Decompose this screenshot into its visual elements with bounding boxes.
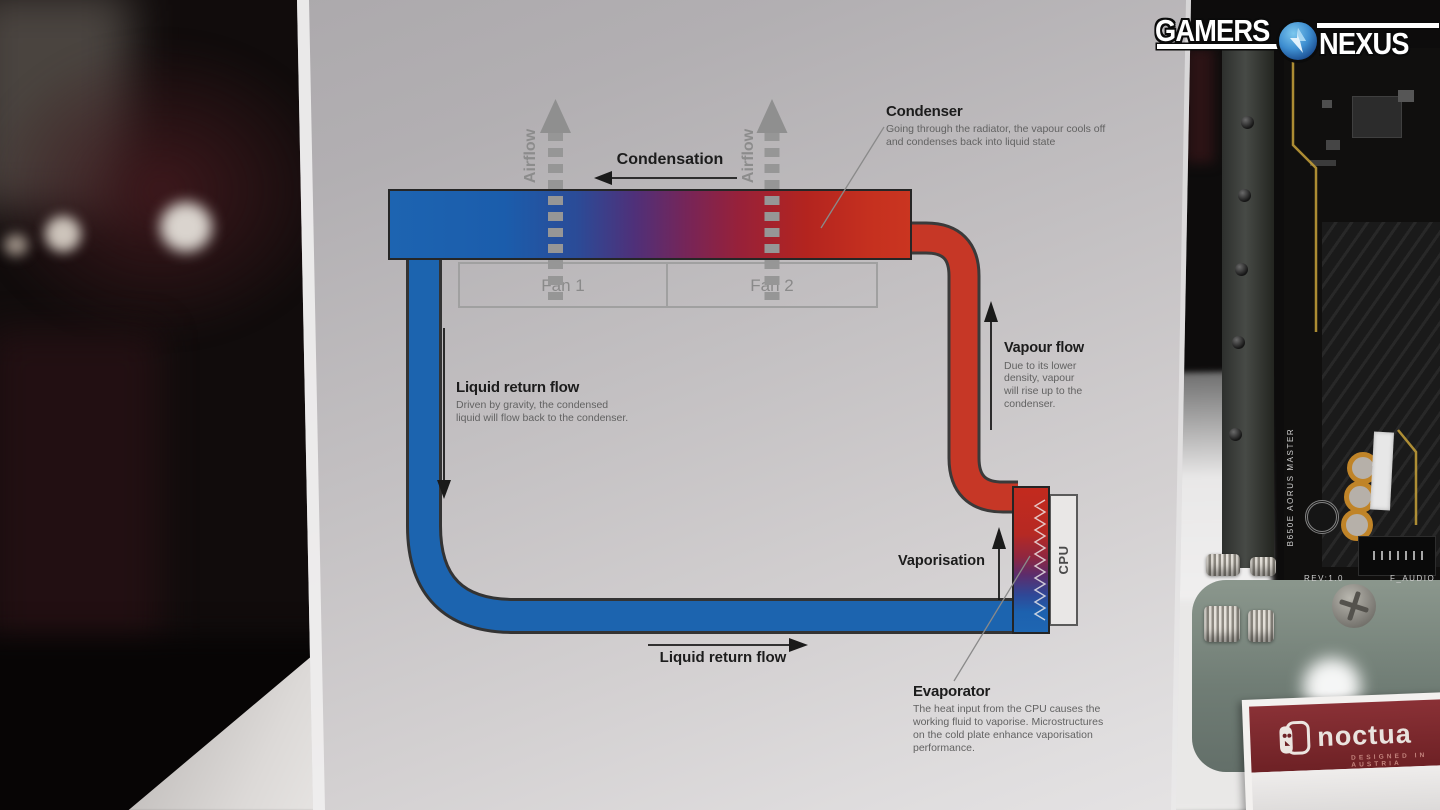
screw: [1229, 428, 1242, 441]
condensation-label: Condensation: [600, 151, 740, 169]
phillips-screw: [1332, 584, 1376, 628]
noctua-card-face: noctua DESIGNED IN AUSTRIA: [1249, 699, 1440, 773]
condenser-callout: Condenser Going through the radiator, th…: [886, 103, 1116, 149]
airflow-label-2: Airflow: [740, 121, 758, 191]
condenser-title: Condenser: [886, 103, 1116, 120]
motherboard-model-text: B650E AORUS MASTER: [1286, 402, 1296, 572]
f-audio-text: F_AUDIO: [1390, 574, 1435, 583]
microstructure-zigzag: [1035, 500, 1045, 620]
airflow-arrowhead-1: [540, 99, 571, 133]
screw: [1238, 189, 1251, 202]
liquid-return-flow-callout: Liquid return flow Driven by gravity, th…: [456, 379, 676, 425]
cpu-label: CPU: [1056, 530, 1070, 590]
thumbscrew: [1248, 610, 1274, 642]
thumbscrew: [1250, 557, 1276, 576]
gamersnexus-logo: GAMERS NEXUS: [1150, 8, 1440, 68]
screw: [1235, 263, 1248, 276]
noctua-brand-card: noctua DESIGNED IN AUSTRIA: [1242, 692, 1440, 810]
screw: [1232, 336, 1245, 349]
evaporator-title: Evaporator: [913, 683, 1133, 700]
video-frame: B650E AORUS MASTER REV:1.0 F_AUDIO noctu…: [0, 0, 1440, 810]
thumbscrew: [1206, 554, 1240, 576]
noctua-wordmark: noctua: [1317, 720, 1412, 751]
barcode-label: [1370, 432, 1394, 511]
liquid-return-flow-bottom-label: Liquid return flow: [650, 649, 796, 666]
evaporator-callout: Evaporator The heat input from the CPU c…: [913, 683, 1133, 754]
evaporator-leader-line: [954, 556, 1030, 681]
liquid-return-flow-title: Liquid return flow: [456, 379, 676, 396]
screw: [1241, 116, 1254, 129]
condenser-description: Going through the radiator, the vapour c…: [886, 123, 1116, 149]
front-audio-header: [1358, 536, 1436, 576]
vapour-flow-callout: Vapour flow Due to its lower density, va…: [1004, 340, 1124, 411]
noctua-card-stand: [1252, 765, 1440, 810]
vaporisation-label: Vaporisation: [880, 553, 985, 569]
vapour-flow-description: Due to its lower density, vapour will ri…: [1004, 360, 1124, 411]
airflow-arrowhead-2: [757, 99, 788, 133]
thumbscrew: [1204, 606, 1240, 642]
liquid-return-flow-description: Driven by gravity, the condensed liquid …: [456, 399, 676, 425]
noctua-owl-logo-icon: [1276, 717, 1312, 758]
pcb-revision-text: REV:1.0: [1304, 574, 1344, 583]
nexus-text: NEXUS: [1319, 28, 1409, 59]
vapour-flow-title: Vapour flow: [1004, 340, 1124, 357]
airflow-label-1: Airflow: [522, 121, 540, 191]
gamersnexus-emblem-icon: [1276, 19, 1320, 63]
cmos-battery-holder: [1305, 500, 1339, 534]
evaporator-description: The heat input from the CPU causes the w…: [913, 703, 1133, 754]
gamers-text: GAMERS: [1155, 15, 1269, 46]
condenser-leader-line: [821, 127, 884, 228]
